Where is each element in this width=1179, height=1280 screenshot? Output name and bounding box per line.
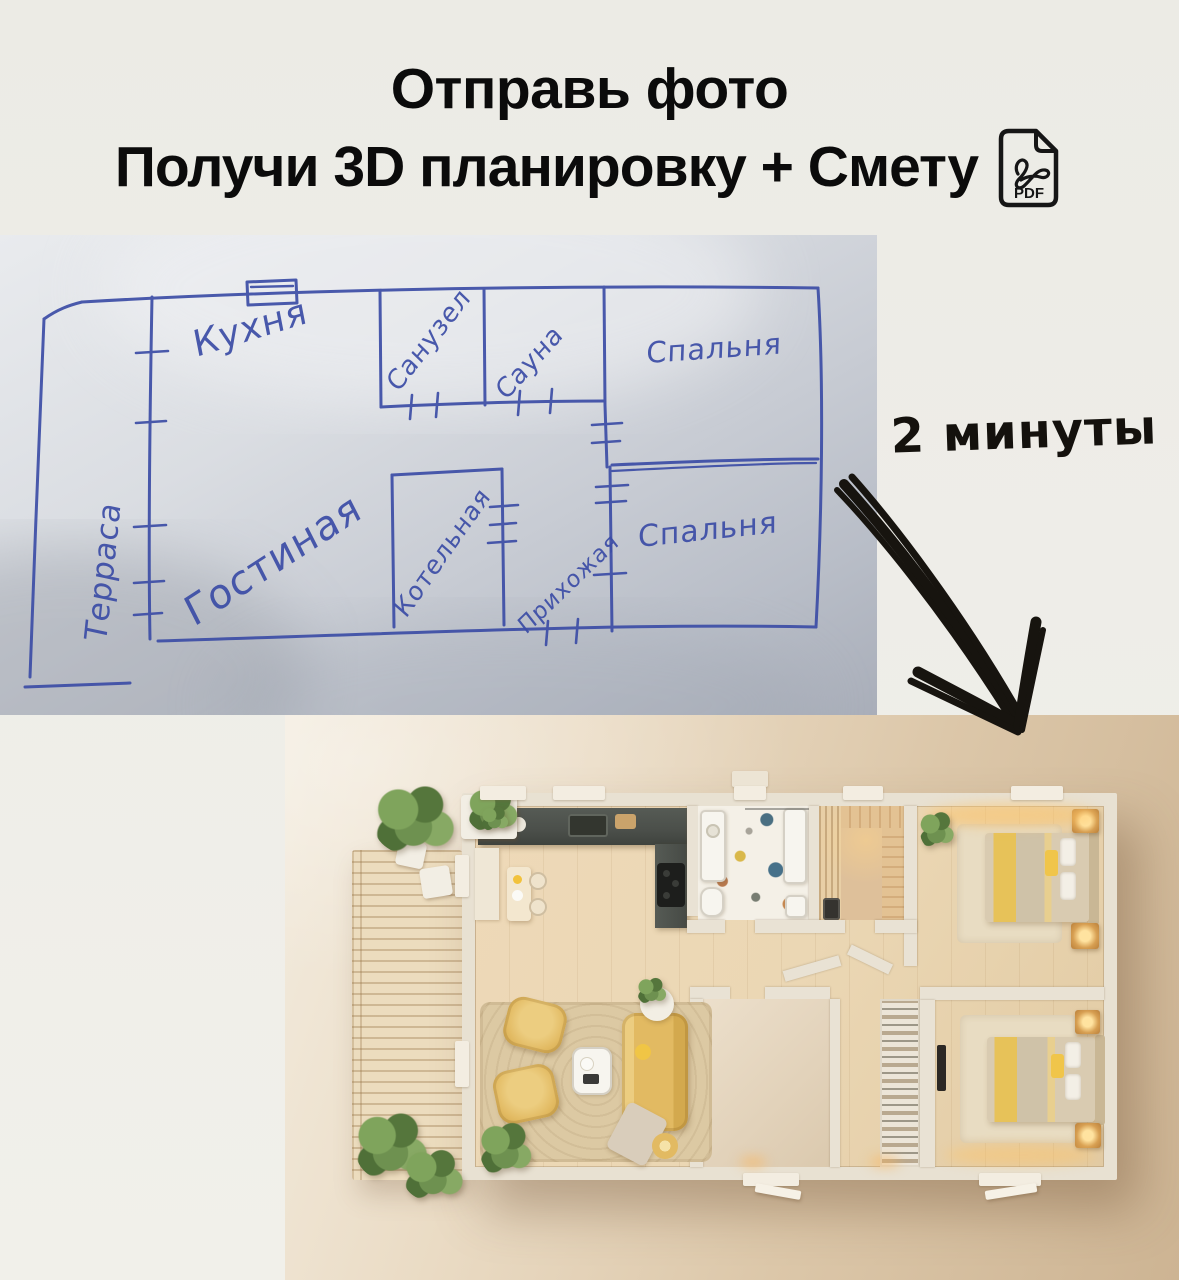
pillow: [1065, 1074, 1081, 1100]
plant: [637, 977, 667, 1005]
nightstand-lamp: [1075, 1123, 1101, 1148]
header: Отправь фото Получи 3D планировку + Смет…: [0, 0, 1179, 209]
entry-door-tab: [734, 786, 766, 800]
mug: [581, 1058, 593, 1070]
nightstand-lamp: [1075, 1010, 1100, 1034]
pillow: [1060, 838, 1076, 866]
bedrooms-divider-wall: [920, 987, 1104, 1000]
headline-line2: Получи 3D планировку + Смету: [115, 136, 978, 199]
window-tab: [553, 786, 605, 800]
window-tab: [480, 786, 526, 800]
hand-drawn-floorplan-photo: Кухня Санузел Сауна Спальня Терраса Гост…: [0, 235, 877, 715]
pdf-badge-label: PDF: [1014, 185, 1044, 202]
arrow-down-icon: [822, 460, 1052, 762]
bathroom-left-wall: [687, 806, 698, 916]
shower-glass: [745, 808, 809, 810]
shower-tray: [785, 895, 807, 918]
accent-pillow: [635, 1044, 651, 1060]
accent-pillow: [1051, 1054, 1064, 1078]
pdf-file-icon: PDF: [994, 127, 1064, 209]
house-walls: [462, 793, 1117, 1180]
coffee-table: [572, 1047, 612, 1095]
promo-post: Отправь фото Получи 3D планировку + Смет…: [0, 0, 1179, 1280]
door-tab: [743, 1173, 799, 1186]
plant: [480, 1120, 532, 1178]
pillow: [1065, 1042, 1081, 1068]
hall-corridor-wall: [830, 999, 840, 1167]
headline-line1: Отправь фото: [0, 58, 1179, 121]
cove-light: [945, 1145, 1095, 1165]
window-tab: [1011, 786, 1063, 800]
pillow: [1060, 872, 1076, 900]
sauna-stove: [823, 898, 840, 920]
utility-room-floor: [703, 999, 830, 1167]
cooktop-burner: [672, 880, 679, 887]
sauna-bedroom-wall: [904, 806, 917, 966]
wet-zone-bottom-wall: [687, 920, 725, 933]
lemon-bowl: [513, 875, 522, 884]
cooktop-burner: [663, 870, 670, 877]
sink-bowl: [706, 824, 720, 838]
dining-chair: [529, 872, 547, 890]
window-tab: [843, 786, 883, 800]
cooktop-burner: [663, 892, 670, 899]
planter-pot: [419, 865, 453, 899]
wet-zone-bottom-wall: [755, 920, 845, 933]
kitchen-sink: [568, 814, 608, 837]
angled-door-jamb: [783, 955, 842, 982]
accent-pillow: [1045, 850, 1058, 876]
sauna-bench-top: [841, 806, 904, 828]
cooktop: [657, 863, 685, 907]
floor-lamp: [652, 1133, 678, 1159]
bedroom2-left-wall: [920, 1000, 935, 1167]
headboard: [1095, 1035, 1105, 1125]
headline-line2-row: Получи 3D планировку + Смету PDF: [0, 127, 1179, 209]
hall-top-wall: [765, 987, 830, 999]
kitchen-cabinet: [475, 848, 499, 920]
dining-chair: [529, 898, 547, 916]
bathtub: [783, 808, 807, 884]
nightstand-lamp: [1071, 923, 1099, 949]
wall-light: [740, 1158, 766, 1166]
bathroom-sauna-wall: [809, 806, 819, 920]
hall-top-wall: [690, 987, 730, 999]
wall-tv: [937, 1045, 946, 1091]
plant: [403, 1149, 465, 1201]
bathroom-vanity: [700, 810, 726, 882]
entry-step: [732, 771, 768, 787]
terrace-door-jamb: [455, 1041, 469, 1087]
plant: [373, 785, 457, 855]
plant: [920, 810, 954, 850]
wall-light: [870, 1158, 900, 1166]
wet-zone-bottom-wall: [875, 920, 917, 933]
toilet: [700, 887, 724, 917]
sauna-bench-side: [882, 828, 904, 920]
angled-door-jamb: [847, 944, 893, 974]
plate: [512, 890, 523, 901]
plant: [481, 806, 509, 832]
headboard: [1089, 830, 1099, 925]
pdf-acrobat-swirl: [1016, 160, 1048, 188]
duration-note: 2 минуты: [873, 399, 1175, 465]
render-3d-floorplan: [285, 715, 1179, 1280]
book: [583, 1074, 599, 1084]
cutting-board: [615, 814, 636, 829]
wardrobe: [880, 999, 920, 1167]
terrace-door-jamb: [455, 855, 469, 897]
